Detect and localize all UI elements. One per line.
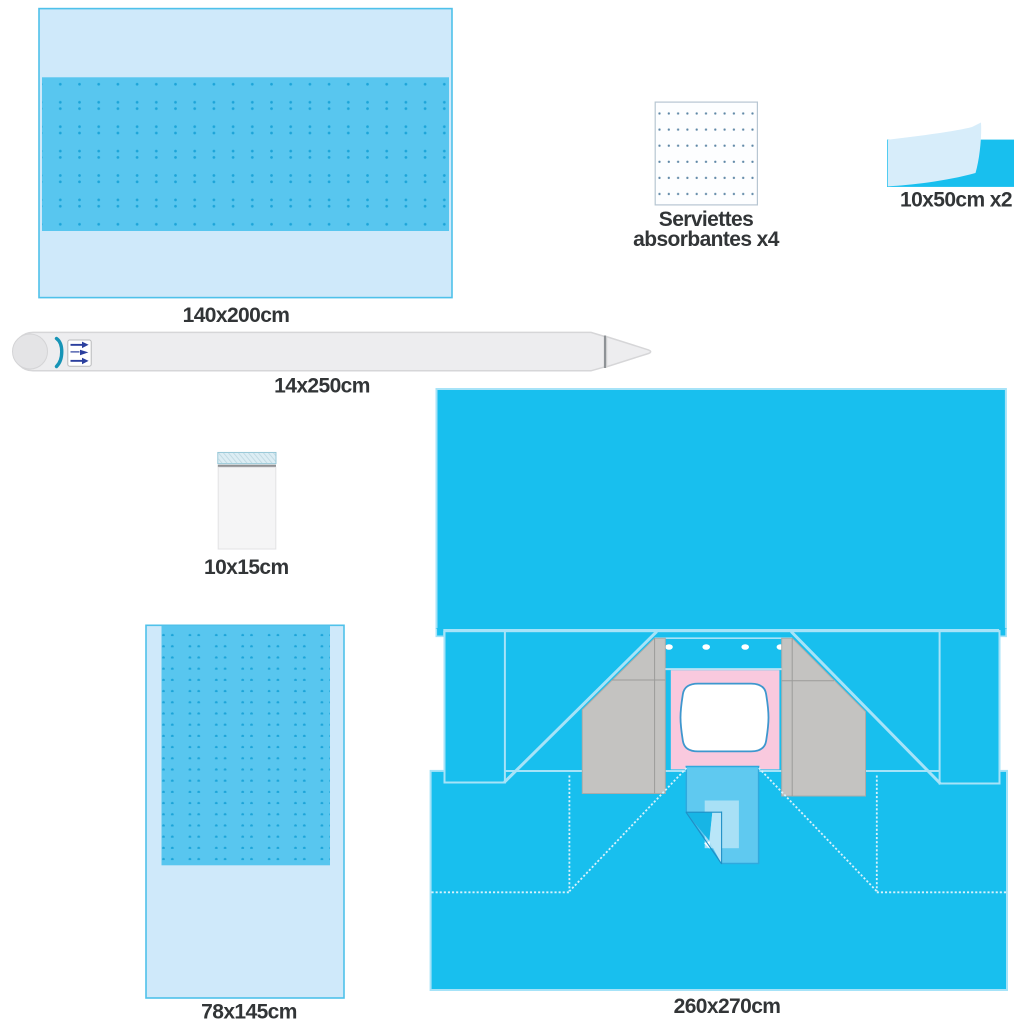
svg-text:10x15cm: 10x15cm [204,556,289,579]
svg-text:14x250cm: 14x250cm [274,375,370,398]
svg-text:260x270cm: 260x270cm [674,995,781,1018]
svg-text:10x50cm x2: 10x50cm x2 [900,189,1012,212]
svg-text:140x200cm: 140x200cm [183,304,290,327]
svg-text:78x145cm: 78x145cm [201,1001,297,1024]
svg-text:absorbantes x4: absorbantes x4 [633,228,780,251]
